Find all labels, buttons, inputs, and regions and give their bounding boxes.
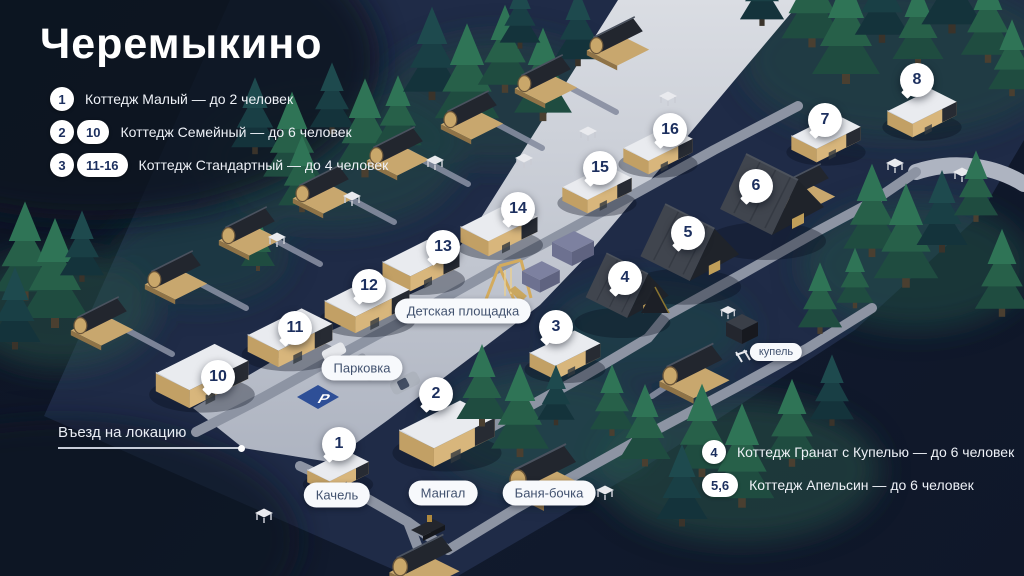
legend-badge: 5,6 — [702, 473, 738, 497]
legend-item-small-cottage: 1 Коттедж Малый — до 2 человек — [50, 87, 388, 111]
legend-item-family-cottage: 2 10 Коттедж Семейный — до 6 человек — [50, 120, 388, 144]
map-marker-4[interactable]: 4 — [608, 261, 642, 295]
entrance-label: Въезд на локацию — [58, 424, 186, 441]
label-parking: Парковка — [322, 356, 403, 381]
legend-badge: 2 — [50, 120, 74, 144]
map-marker-5[interactable]: 5 — [671, 216, 705, 250]
legend-text: Коттедж Стандартный — до 4 человек — [139, 157, 389, 173]
map-marker-13[interactable]: 13 — [426, 230, 460, 264]
entrance-pointer-line — [58, 447, 241, 449]
legend-cottage-types: 1 Коттедж Малый — до 2 человек 2 10 Котт… — [50, 87, 388, 177]
legend-badge: 3 — [50, 153, 74, 177]
label-tub: купель — [750, 343, 802, 361]
legend-special-cottages: 4 Коттедж Гранат с Купелью — до 6 челове… — [702, 440, 1014, 497]
legend-text: Коттедж Апельсин — до 6 человек — [749, 477, 974, 493]
map-marker-8[interactable]: 8 — [900, 63, 934, 97]
map-marker-12[interactable]: 12 — [352, 269, 386, 303]
legend-text: Коттедж Гранат с Купелью — до 6 человек — [737, 444, 1014, 460]
map-marker-10[interactable]: 10 — [201, 360, 235, 394]
legend-badge: 4 — [702, 440, 726, 464]
map-marker-7[interactable]: 7 — [808, 103, 842, 137]
label-grill: Мангал — [409, 481, 478, 506]
map-marker-11[interactable]: 11 — [278, 311, 312, 345]
legend-text: Коттедж Малый — до 2 человек — [85, 91, 293, 107]
resort-map-page: P — [0, 0, 1024, 576]
legend-item-granat-cottage: 4 Коттедж Гранат с Купелью — до 6 челове… — [702, 440, 1014, 464]
map-marker-3[interactable]: 3 — [539, 310, 573, 344]
legend-badge: 1 — [50, 87, 74, 111]
label-playground: Детская площадка — [395, 299, 531, 324]
legend-item-apelsin-cottage: 5,6 Коттедж Апельсин — до 6 человек — [702, 473, 1014, 497]
map-marker-16[interactable]: 16 — [653, 113, 687, 147]
map-marker-15[interactable]: 15 — [583, 151, 617, 185]
map-marker-1[interactable]: 1 — [322, 427, 356, 461]
label-swing: Качель — [304, 483, 370, 508]
map-marker-14[interactable]: 14 — [501, 192, 535, 226]
legend-badge: 11-16 — [77, 153, 128, 177]
page-title: Черемыкино — [40, 20, 322, 69]
label-barrel-sauna: Баня-бочка — [503, 481, 596, 506]
legend-text: Коттедж Семейный — до 6 человек — [120, 124, 351, 140]
map-marker-2[interactable]: 2 — [419, 377, 453, 411]
map-marker-6[interactable]: 6 — [739, 169, 773, 203]
legend-item-standard-cottage: 3 11-16 Коттедж Стандартный — до 4 челов… — [50, 153, 388, 177]
legend-badge: 10 — [77, 120, 109, 144]
